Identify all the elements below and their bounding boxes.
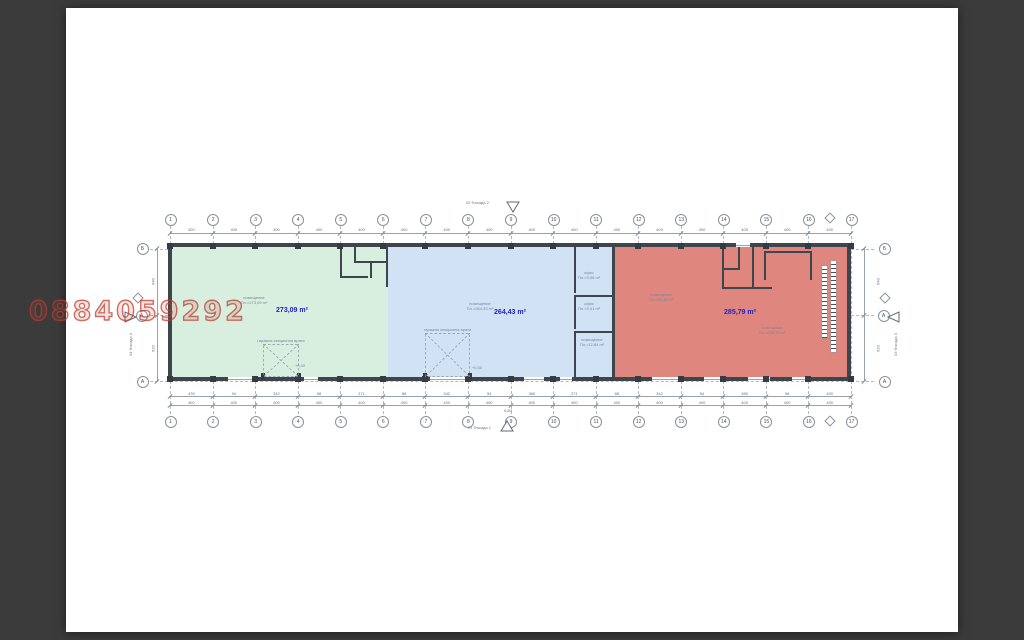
dimension-value: 400 [394, 227, 414, 232]
column [295, 243, 301, 249]
gate-label: гаражна секционна врата [418, 328, 478, 333]
gate-x-icon [425, 333, 470, 377]
grid-bubble: 5 [335, 214, 347, 226]
grid-bubble: 2 [207, 214, 219, 226]
grid-bubble: 11 [590, 416, 602, 428]
grid-bubble: 13 [675, 214, 687, 226]
ladder [831, 261, 836, 352]
dimension-value: 400 [352, 227, 372, 232]
door-line [704, 379, 720, 380]
plan: 1122334455667788991010111112121313141415… [0, 0, 1024, 640]
column [167, 376, 173, 382]
facade-label: 03 Фасада 3 [893, 333, 898, 356]
interior-wall [612, 247, 615, 377]
dimension-value: 400 [309, 400, 329, 405]
interior-wall [340, 247, 342, 278]
column [848, 376, 854, 382]
grid-bubble: 17 [846, 214, 858, 226]
dimension-value: 400 [437, 227, 457, 232]
dimension-value: 620 [151, 339, 156, 359]
column [593, 243, 599, 249]
grid-bubble: 4 [292, 416, 304, 428]
door-line [304, 379, 318, 380]
dimension-value: 342 [437, 391, 457, 396]
dimension-value: 400 [777, 400, 797, 405]
dimension-value: 400 [522, 227, 542, 232]
dimension-total: 6,80 [496, 408, 520, 413]
grid-bubble: 14 [718, 416, 730, 428]
grid-line [851, 226, 852, 414]
column [720, 376, 726, 382]
gate-area [425, 333, 470, 377]
grid-bubble: 16 [803, 214, 815, 226]
column [635, 243, 641, 249]
zone-caption: Пл.=273,09 m² [234, 301, 274, 306]
column [720, 243, 726, 249]
column [805, 243, 811, 249]
grid-bubble: 11 [590, 214, 602, 226]
dimension-value: 88 [394, 391, 414, 396]
column [550, 376, 556, 382]
column [337, 376, 343, 382]
grid-bubble: 14 [718, 214, 730, 226]
zone-caption: Пл.=285,79 m² [752, 331, 792, 336]
dimension-value: 271 [564, 391, 584, 396]
column [593, 376, 599, 382]
column [763, 243, 769, 249]
dimension-value: 342 [266, 391, 286, 396]
dimension-value: 400 [692, 400, 712, 405]
dimension-value: 54 [479, 391, 499, 396]
facade-triangle-icon [500, 419, 514, 431]
axis-diamond-icon [824, 212, 835, 223]
grid-bubble: 15 [760, 214, 772, 226]
screenshot-stage: 1122334455667788991010111112121313141415… [0, 0, 1024, 640]
dimension-value: 400 [820, 391, 840, 396]
grid-bubble: 8 [462, 214, 474, 226]
column [465, 243, 471, 249]
dimension-value: 400 [224, 227, 244, 232]
column [210, 243, 216, 249]
grid-bubble: 7 [420, 416, 432, 428]
dimension-value: 342 [650, 391, 670, 396]
dimension-value: 400 [607, 227, 627, 232]
dimension-value: 58 [777, 391, 797, 396]
column [508, 376, 514, 382]
grid-bubble: 4 [292, 214, 304, 226]
column [380, 376, 386, 382]
interior-wall [574, 331, 614, 333]
dimension-value: 380 [522, 391, 542, 396]
grid-bubble: 7 [420, 214, 432, 226]
column [167, 243, 173, 249]
interior-wall [722, 268, 740, 270]
area-label: 273,09 m² [252, 307, 332, 314]
dimension-value: 400 [437, 400, 457, 405]
interior-wall [764, 251, 766, 280]
axis-bubble: А [879, 376, 891, 388]
dimension-value: 478 [181, 391, 201, 396]
room-label: Пл.=36,45 m² [643, 298, 679, 303]
column [848, 243, 854, 249]
dimension-value: 54 [692, 391, 712, 396]
dimension-value: 400 [607, 400, 627, 405]
column [337, 243, 343, 249]
dimension-value: 400 [777, 227, 797, 232]
dimension-value: 400 [224, 400, 244, 405]
dimension-value: 380 [735, 391, 755, 396]
column [805, 376, 811, 382]
facade-triangle-icon [886, 310, 900, 322]
grid-bubble: 1 [165, 416, 177, 428]
column [508, 243, 514, 249]
building-wall [847, 243, 851, 381]
door-line [652, 379, 678, 380]
grid-bubble: 6 [377, 214, 389, 226]
dimension-value: 400 [266, 227, 286, 232]
column [422, 243, 428, 249]
interior-wall [340, 276, 368, 278]
level-mark: +0,00 [467, 366, 487, 371]
grid-bubble: 9 [505, 214, 517, 226]
dimension-value: 400 [479, 227, 499, 232]
interior-wall [764, 251, 812, 253]
grid-bubble: 6 [377, 416, 389, 428]
grid-bubble: 17 [846, 416, 858, 428]
grid-bubble: 13 [675, 416, 687, 428]
column [252, 376, 258, 382]
dimension-value: 271 [352, 391, 372, 396]
axis-bubble: Б [879, 243, 891, 255]
grid-bubble: 5 [335, 416, 347, 428]
zone-caption: Пл.=264,43 m² [460, 307, 500, 312]
column [252, 243, 258, 249]
grid-bubble: 2 [207, 416, 219, 428]
gate-area [263, 344, 299, 377]
column [635, 376, 641, 382]
grid-bubble: 1 [165, 214, 177, 226]
gate-x-icon [263, 344, 299, 377]
room-label: Пл.=12,84 m² [574, 343, 610, 348]
dimension-value: 400 [692, 227, 712, 232]
axis-diamond-icon [132, 292, 143, 303]
grid-bubble: 10 [548, 416, 560, 428]
column [678, 243, 684, 249]
dimension-value: 400 [735, 227, 755, 232]
interior-wall [738, 247, 740, 270]
dimension-value: 88 [607, 391, 627, 396]
dimension-value: 400 [181, 227, 201, 232]
room-label: Пл.=9,01 m² [571, 307, 607, 312]
dimension-value: 400 [564, 227, 584, 232]
dimension-value: 58 [309, 391, 329, 396]
dimension-value: 620 [876, 339, 881, 359]
dimension-value: 400 [522, 400, 542, 405]
grid-bubble: 16 [803, 416, 815, 428]
column [550, 243, 556, 249]
level-mark: +0,00 [290, 364, 310, 369]
axis-bubble: А [137, 376, 149, 388]
column [210, 376, 216, 382]
dimension-value: 400 [820, 400, 840, 405]
grid-bubble: 10 [548, 214, 560, 226]
dimension-value: 400 [181, 400, 201, 405]
axis-diamond-icon [824, 415, 835, 426]
area-label: 285,79 m² [700, 309, 780, 316]
ladder [822, 266, 827, 338]
facade-label: 04 Фасада 4 [128, 333, 133, 356]
door-line [524, 379, 544, 380]
door-line [736, 245, 750, 246]
grid-bubble: 12 [633, 416, 645, 428]
dimension-value: 400 [352, 400, 372, 405]
dimension-value: 640 [151, 272, 156, 292]
column [380, 243, 386, 249]
dimension-value: 400 [650, 400, 670, 405]
room-label: Пл.=9,06 m² [571, 276, 607, 281]
interior-wall [370, 261, 372, 278]
dimension-value: 400 [564, 400, 584, 405]
dimension-value: 400 [394, 400, 414, 405]
interior-wall [574, 247, 576, 293]
dimension-value: 94 [224, 391, 244, 396]
door-line [228, 379, 254, 380]
interior-wall [722, 287, 772, 289]
grid-bubble: 3 [250, 214, 262, 226]
axis-diamond-icon [879, 292, 890, 303]
gate-label: гаражна секционна врата [251, 339, 311, 344]
dimension-value: 400 [479, 400, 499, 405]
dimension-value: 400 [266, 400, 286, 405]
facade-label: 02 Фасада 2 [466, 200, 489, 205]
dimension-value: 400 [309, 227, 329, 232]
grid-bubble: 15 [760, 416, 772, 428]
door-line [430, 379, 466, 380]
axis-bubble: Б [137, 243, 149, 255]
building-wall [168, 243, 172, 381]
facade-triangle-icon [124, 310, 138, 322]
dimension-value: 640 [876, 272, 881, 292]
grid-bubble: 3 [250, 416, 262, 428]
interior-wall [386, 247, 388, 287]
door-line [560, 379, 572, 380]
interior-wall [574, 295, 614, 297]
interior-wall [752, 247, 754, 289]
facade-triangle-icon [506, 200, 520, 212]
interior-wall [810, 251, 812, 280]
dimension-value: 400 [820, 227, 840, 232]
dimension-value: 400 [650, 227, 670, 232]
facade-label: 01 Фасада 1 [468, 425, 491, 430]
dimension-value: 400 [735, 400, 755, 405]
grid-bubble: 12 [633, 214, 645, 226]
column [678, 376, 684, 382]
column [763, 376, 769, 382]
